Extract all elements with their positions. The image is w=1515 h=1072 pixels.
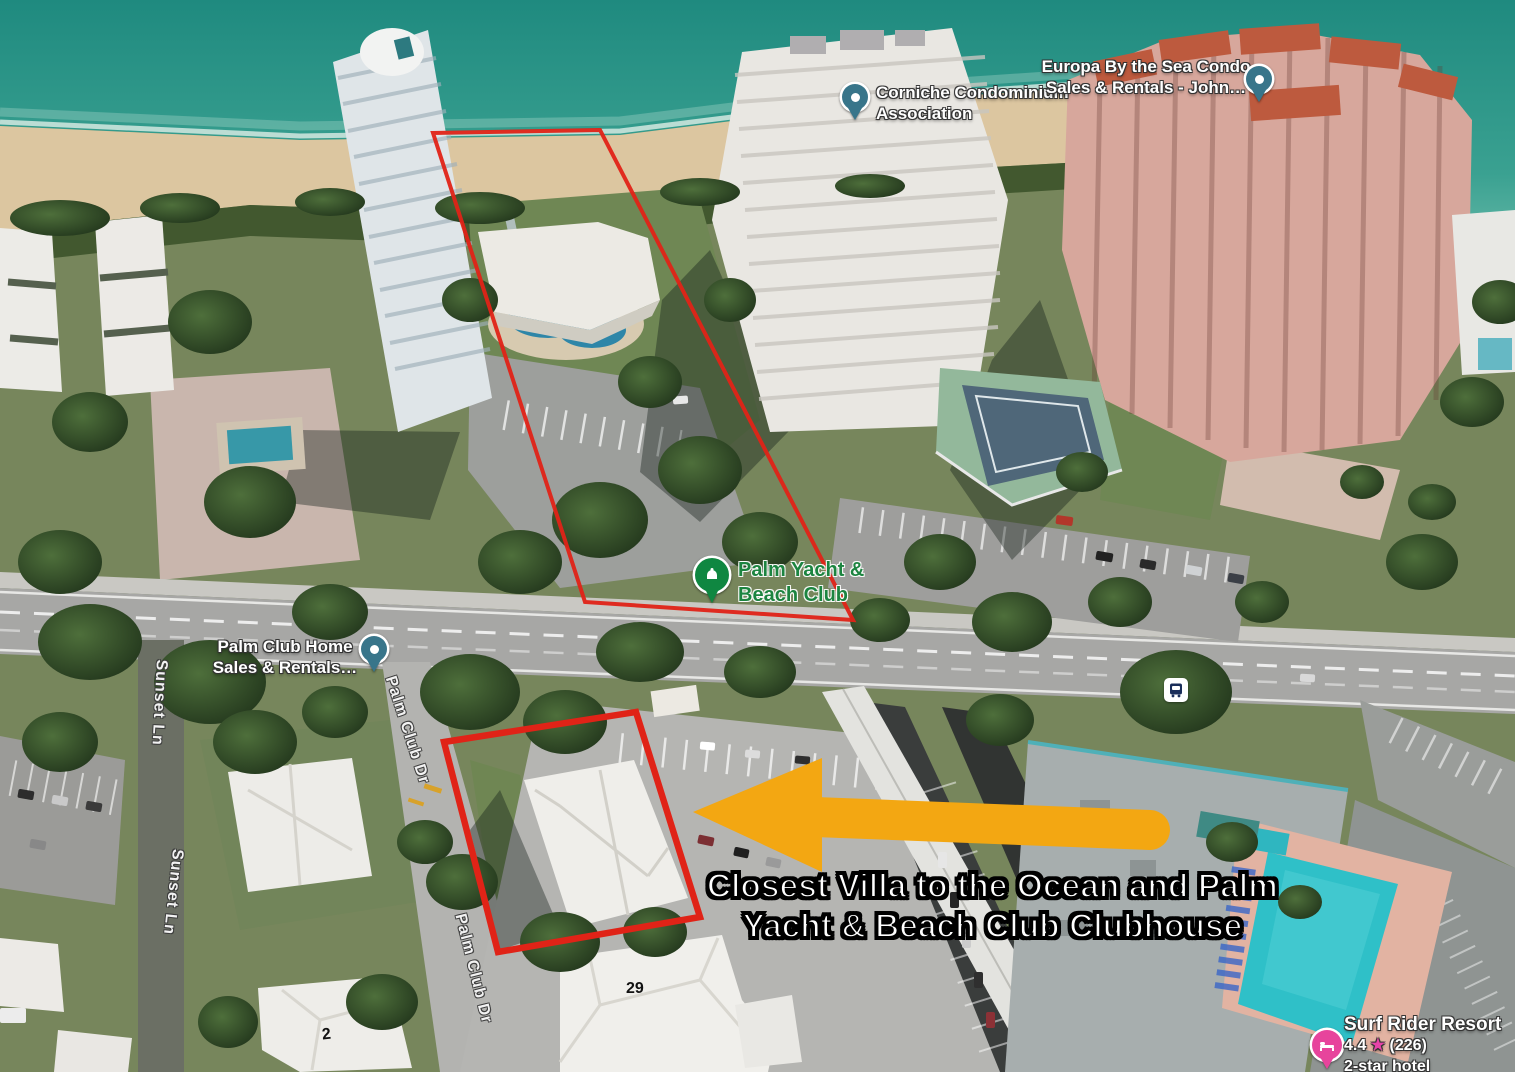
- surf-rider-rating-row: 4.4 ★ (226): [1344, 1035, 1501, 1056]
- building-number-29: 29: [626, 980, 644, 998]
- bus-stop-icon[interactable]: [1164, 678, 1188, 702]
- hotel-bed-glyph-icon: [1318, 1036, 1336, 1054]
- palm-yacht-label-line1: Palm Yacht &: [738, 558, 864, 583]
- europa-label-line1: Europa By the Sea Condo: [1040, 56, 1252, 77]
- caption-line1: Closest Villa to the Ocean and Palm: [700, 866, 1285, 906]
- europa-label[interactable]: Europa By the Sea Condo Sales & Rentals …: [1040, 56, 1252, 98]
- beach-club-glyph-icon: [703, 566, 721, 584]
- europa-map-pin-icon[interactable]: [1246, 66, 1272, 92]
- annotation-caption: Closest Villa to the Ocean and Palm Yach…: [700, 866, 1285, 946]
- surf-rider-reviews: (226): [1390, 1037, 1427, 1054]
- palm-club-home-label-line1: Palm Club Home: [210, 636, 360, 657]
- palm-yacht-label-line2: Beach Club: [738, 583, 864, 608]
- beach-club-pin-icon[interactable]: [695, 558, 729, 592]
- palm-club-home-label[interactable]: Palm Club Home Sales & Rentals…: [210, 636, 360, 678]
- surf-rider-category: 2-star hotel: [1344, 1056, 1501, 1072]
- building-number-2: 2: [321, 1026, 332, 1045]
- caption-line2: Yacht & Beach Club Clubhouse: [700, 906, 1285, 946]
- palm-yacht-beach-club-label[interactable]: Palm Yacht & Beach Club: [738, 558, 864, 608]
- surf-rider-rating: 4.4: [1344, 1037, 1366, 1054]
- surf-rider-name: Surf Rider Resort: [1344, 1014, 1501, 1035]
- surf-rider-label[interactable]: Surf Rider Resort 4.4 ★ (226) 2-star hot…: [1344, 1014, 1501, 1072]
- corniche-label-line2: Association: [876, 103, 1069, 124]
- europa-label-line2: Sales & Rentals - John…: [1040, 77, 1252, 98]
- hotel-pin-icon[interactable]: [1312, 1030, 1342, 1060]
- rating-star-icon: ★: [1371, 1037, 1385, 1054]
- palm-club-home-label-line2: Sales & Rentals…: [210, 657, 360, 678]
- map-canvas[interactable]: Corniche Condominium Association Europa …: [0, 0, 1515, 1072]
- corniche-map-pin-icon[interactable]: [842, 84, 868, 110]
- bus-glyph-icon: [1168, 682, 1184, 698]
- palm-club-home-map-pin-icon[interactable]: [361, 636, 387, 662]
